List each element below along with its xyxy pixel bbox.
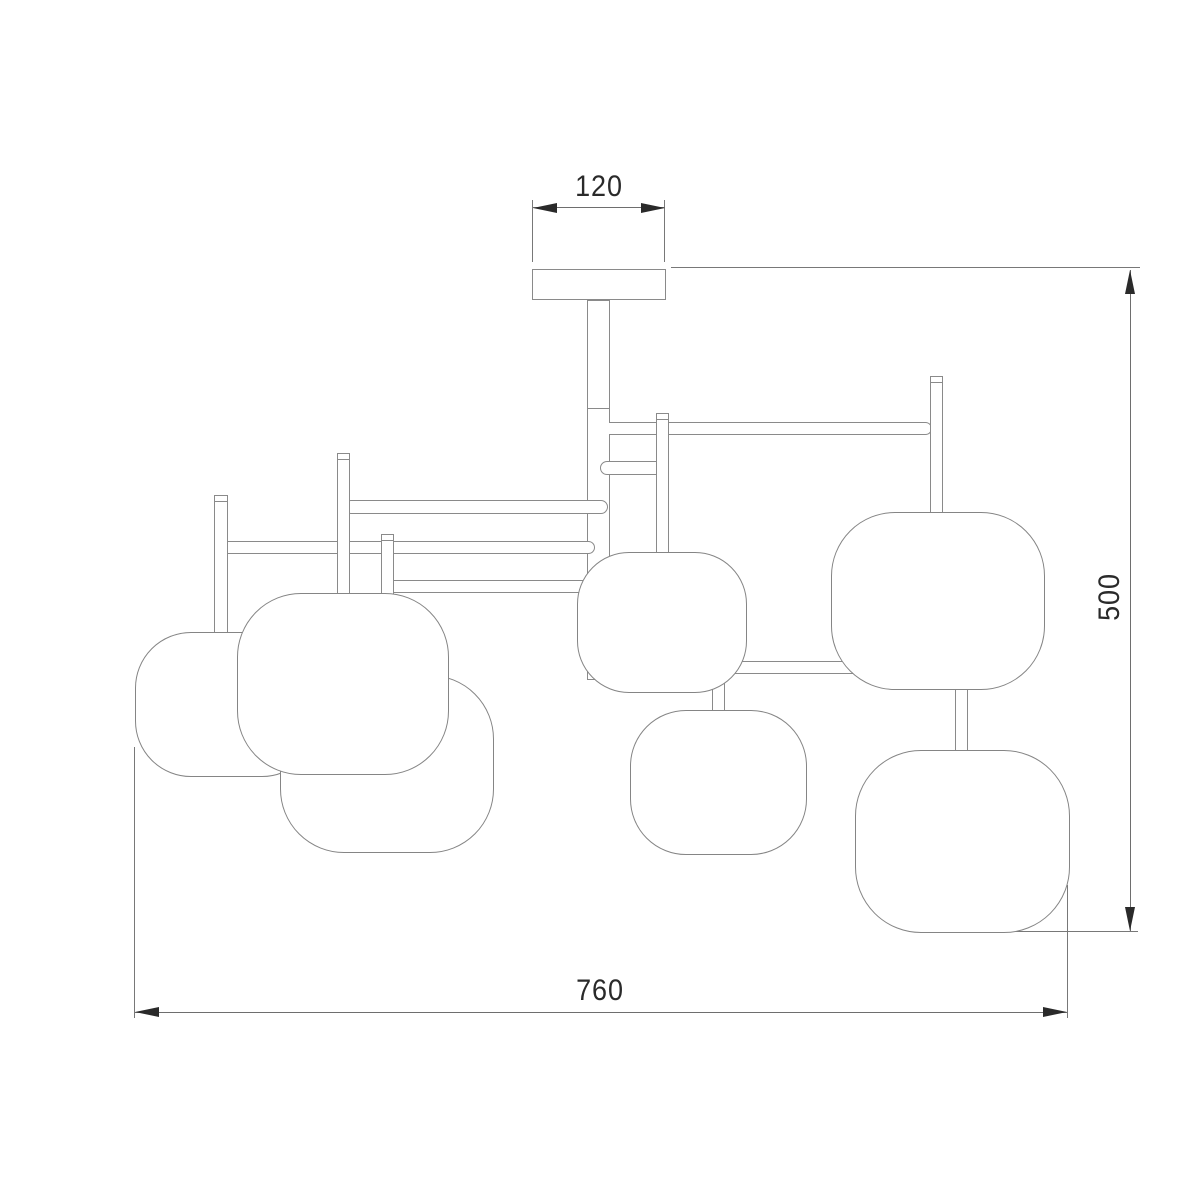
rod-cap — [215, 501, 227, 502]
dim-120-arrow-left — [533, 203, 557, 213]
shade-center-bottom — [630, 710, 807, 855]
dim-120-label: 120 — [554, 172, 644, 202]
dim-760-extension-right — [1067, 885, 1068, 1018]
shade-left-upper — [237, 593, 449, 775]
ceiling-canopy-plate — [532, 269, 666, 300]
dim-500-arrow-bottom — [1125, 907, 1135, 931]
stem-coupler-line — [588, 408, 609, 409]
dim-760-label: 760 — [555, 976, 645, 1006]
shade-center — [577, 552, 747, 693]
dim-760-extension-left — [134, 747, 135, 1018]
technical-drawing-canvas: 120 500 760 — [0, 0, 1200, 1200]
dim-760-line — [135, 1012, 1067, 1013]
rod-cap — [931, 382, 942, 383]
dim-500-extension-top — [671, 267, 1140, 268]
rod-right-upper — [930, 376, 943, 522]
rod-cap — [382, 540, 393, 541]
dim-500-line — [1130, 270, 1131, 931]
rod-center — [656, 413, 669, 560]
rod-left-lower — [381, 534, 394, 600]
arm-mid-left — [344, 500, 608, 514]
dim-120-arrow-right — [641, 203, 665, 213]
shade-right-upper — [831, 512, 1045, 690]
dim-500-label: 500 — [1095, 552, 1125, 642]
rod-left-upper — [337, 453, 350, 600]
arm-long-left — [221, 541, 595, 554]
rod-cap — [338, 459, 349, 460]
rod-far-left — [214, 495, 228, 640]
dim-760-arrow-right — [1043, 1007, 1067, 1017]
dim-500-arrow-top — [1125, 270, 1135, 294]
rod-cap — [657, 419, 668, 420]
shade-right-bottom — [855, 750, 1070, 933]
dim-760-arrow-left — [135, 1007, 159, 1017]
dim-500-extension-bottom — [1007, 931, 1138, 932]
